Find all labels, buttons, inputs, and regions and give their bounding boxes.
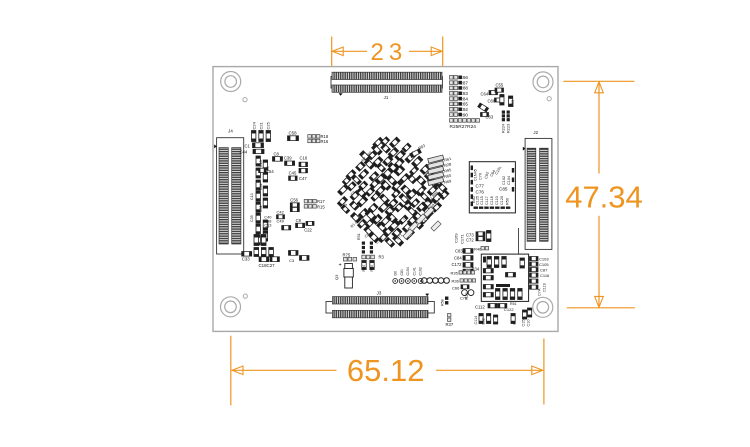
- svg-text:C117: C117: [485, 196, 489, 205]
- svg-text:C45: C45: [289, 171, 297, 176]
- svg-text:C49: C49: [277, 219, 285, 224]
- svg-text:C115: C115: [480, 196, 484, 205]
- svg-text:R29: R29: [465, 293, 469, 300]
- svg-text:C72: C72: [466, 238, 474, 243]
- svg-text:C1: C1: [245, 144, 251, 149]
- svg-text:R35: R35: [451, 271, 459, 276]
- svg-text:+: +: [339, 263, 342, 269]
- svg-text:65.12: 65.12: [347, 353, 425, 388]
- svg-text:C42: C42: [277, 210, 285, 215]
- svg-text:R37: R37: [446, 322, 454, 327]
- svg-text:C81: C81: [400, 269, 404, 275]
- svg-text:C21: C21: [259, 121, 264, 129]
- svg-text:R50: R50: [506, 198, 510, 205]
- svg-text:C47: C47: [299, 176, 307, 181]
- svg-text:C76: C76: [476, 190, 485, 195]
- svg-text:C54: C54: [266, 169, 274, 174]
- svg-text:R66: R66: [460, 75, 469, 80]
- svg-text:J3: J3: [377, 291, 382, 296]
- svg-text:C83: C83: [455, 249, 463, 254]
- svg-text:R51: R51: [357, 233, 361, 240]
- svg-text:C15: C15: [522, 320, 526, 327]
- svg-text:C22: C22: [304, 228, 312, 233]
- svg-text:C51: C51: [259, 205, 263, 212]
- svg-text:47.34: 47.34: [565, 180, 643, 215]
- svg-text:D0: D0: [394, 271, 398, 276]
- svg-text:C77: C77: [476, 184, 485, 189]
- svg-text:C24: C24: [252, 121, 257, 129]
- svg-text:C85: C85: [499, 187, 508, 192]
- svg-text:C162: C162: [419, 267, 423, 275]
- svg-text:R17: R17: [317, 199, 325, 204]
- svg-text:R51: R51: [510, 302, 517, 306]
- svg-text:R16: R16: [321, 139, 329, 144]
- svg-text:R75: R75: [343, 252, 351, 257]
- svg-text:C87: C87: [540, 268, 548, 273]
- svg-text:J1: J1: [384, 95, 389, 100]
- svg-text:R15: R15: [317, 204, 325, 209]
- svg-text:R36: R36: [452, 279, 460, 284]
- svg-text:C116: C116: [540, 273, 550, 278]
- svg-text:C169: C169: [454, 233, 459, 243]
- svg-text:R92: R92: [460, 107, 469, 112]
- svg-text:Q3: Q3: [334, 274, 339, 280]
- svg-text:C44: C44: [240, 150, 248, 155]
- svg-text:L02: L02: [482, 318, 486, 324]
- svg-text:C56: C56: [290, 198, 298, 203]
- svg-text:C13: C13: [264, 223, 271, 228]
- svg-text:C66: C66: [452, 286, 460, 291]
- svg-text:R3: R3: [379, 255, 385, 260]
- svg-text:C103: C103: [539, 257, 549, 262]
- svg-text:C171: C171: [460, 234, 465, 244]
- svg-text:C16: C16: [300, 156, 308, 161]
- svg-text:C70: C70: [479, 173, 483, 180]
- svg-text:C8: C8: [274, 151, 280, 156]
- svg-text:R90: R90: [460, 112, 469, 117]
- svg-text:C154: C154: [406, 267, 410, 275]
- svg-text:C7A: C7A: [538, 288, 542, 296]
- svg-text:C1N45: C1N45: [474, 169, 478, 181]
- svg-text:C15: C15: [259, 160, 263, 167]
- svg-text:R87: R87: [460, 80, 469, 85]
- svg-text:23: 23: [371, 39, 408, 66]
- svg-text:R58: R58: [441, 299, 445, 306]
- svg-text:C84: C84: [454, 255, 462, 260]
- svg-text:C118: C118: [490, 196, 494, 205]
- svg-text:C39: C39: [284, 156, 292, 161]
- svg-text:C112: C112: [475, 305, 485, 310]
- svg-text:J4: J4: [228, 129, 233, 134]
- svg-text:C13: C13: [250, 193, 254, 200]
- svg-text:R224: R224: [502, 124, 506, 133]
- svg-text:J2: J2: [533, 130, 538, 135]
- svg-text:C33: C33: [242, 257, 251, 262]
- svg-text:C102: C102: [502, 176, 506, 185]
- svg-text:C141: C141: [412, 267, 416, 275]
- svg-text:C58: C58: [289, 131, 298, 136]
- svg-text:R65: R65: [460, 102, 469, 107]
- svg-text:C18C27: C18C27: [259, 263, 276, 268]
- svg-text:C110: C110: [495, 196, 499, 205]
- svg-text:R83: R83: [460, 91, 469, 96]
- svg-text:C122: C122: [504, 307, 514, 312]
- svg-text:C9: C9: [296, 218, 302, 223]
- svg-text:R70: R70: [370, 265, 374, 271]
- svg-text:C3: C3: [289, 258, 295, 263]
- svg-text:C55: C55: [496, 83, 504, 88]
- svg-text:C104: C104: [507, 176, 511, 185]
- svg-text:C52: C52: [259, 183, 263, 190]
- svg-text:C125: C125: [476, 196, 480, 205]
- svg-text:C120: C120: [500, 196, 504, 205]
- svg-text:C65: C65: [510, 99, 515, 107]
- svg-text:C114: C114: [474, 316, 478, 325]
- svg-text:C119: C119: [543, 283, 547, 292]
- svg-text:R223: R223: [506, 124, 510, 133]
- svg-text:C10: C10: [527, 320, 531, 327]
- svg-text:C64: C64: [481, 92, 489, 97]
- svg-text:C25: C25: [266, 121, 271, 129]
- svg-text:R84: R84: [460, 96, 469, 101]
- svg-text:C35: C35: [250, 215, 254, 222]
- svg-text:C105: C105: [539, 262, 549, 267]
- svg-text:R80: R80: [472, 196, 476, 203]
- svg-text:R64: R64: [362, 265, 366, 271]
- svg-text:C172: C172: [452, 262, 463, 267]
- svg-text:R88: R88: [460, 86, 469, 91]
- svg-text:R25R27R24: R25R27R24: [450, 124, 477, 130]
